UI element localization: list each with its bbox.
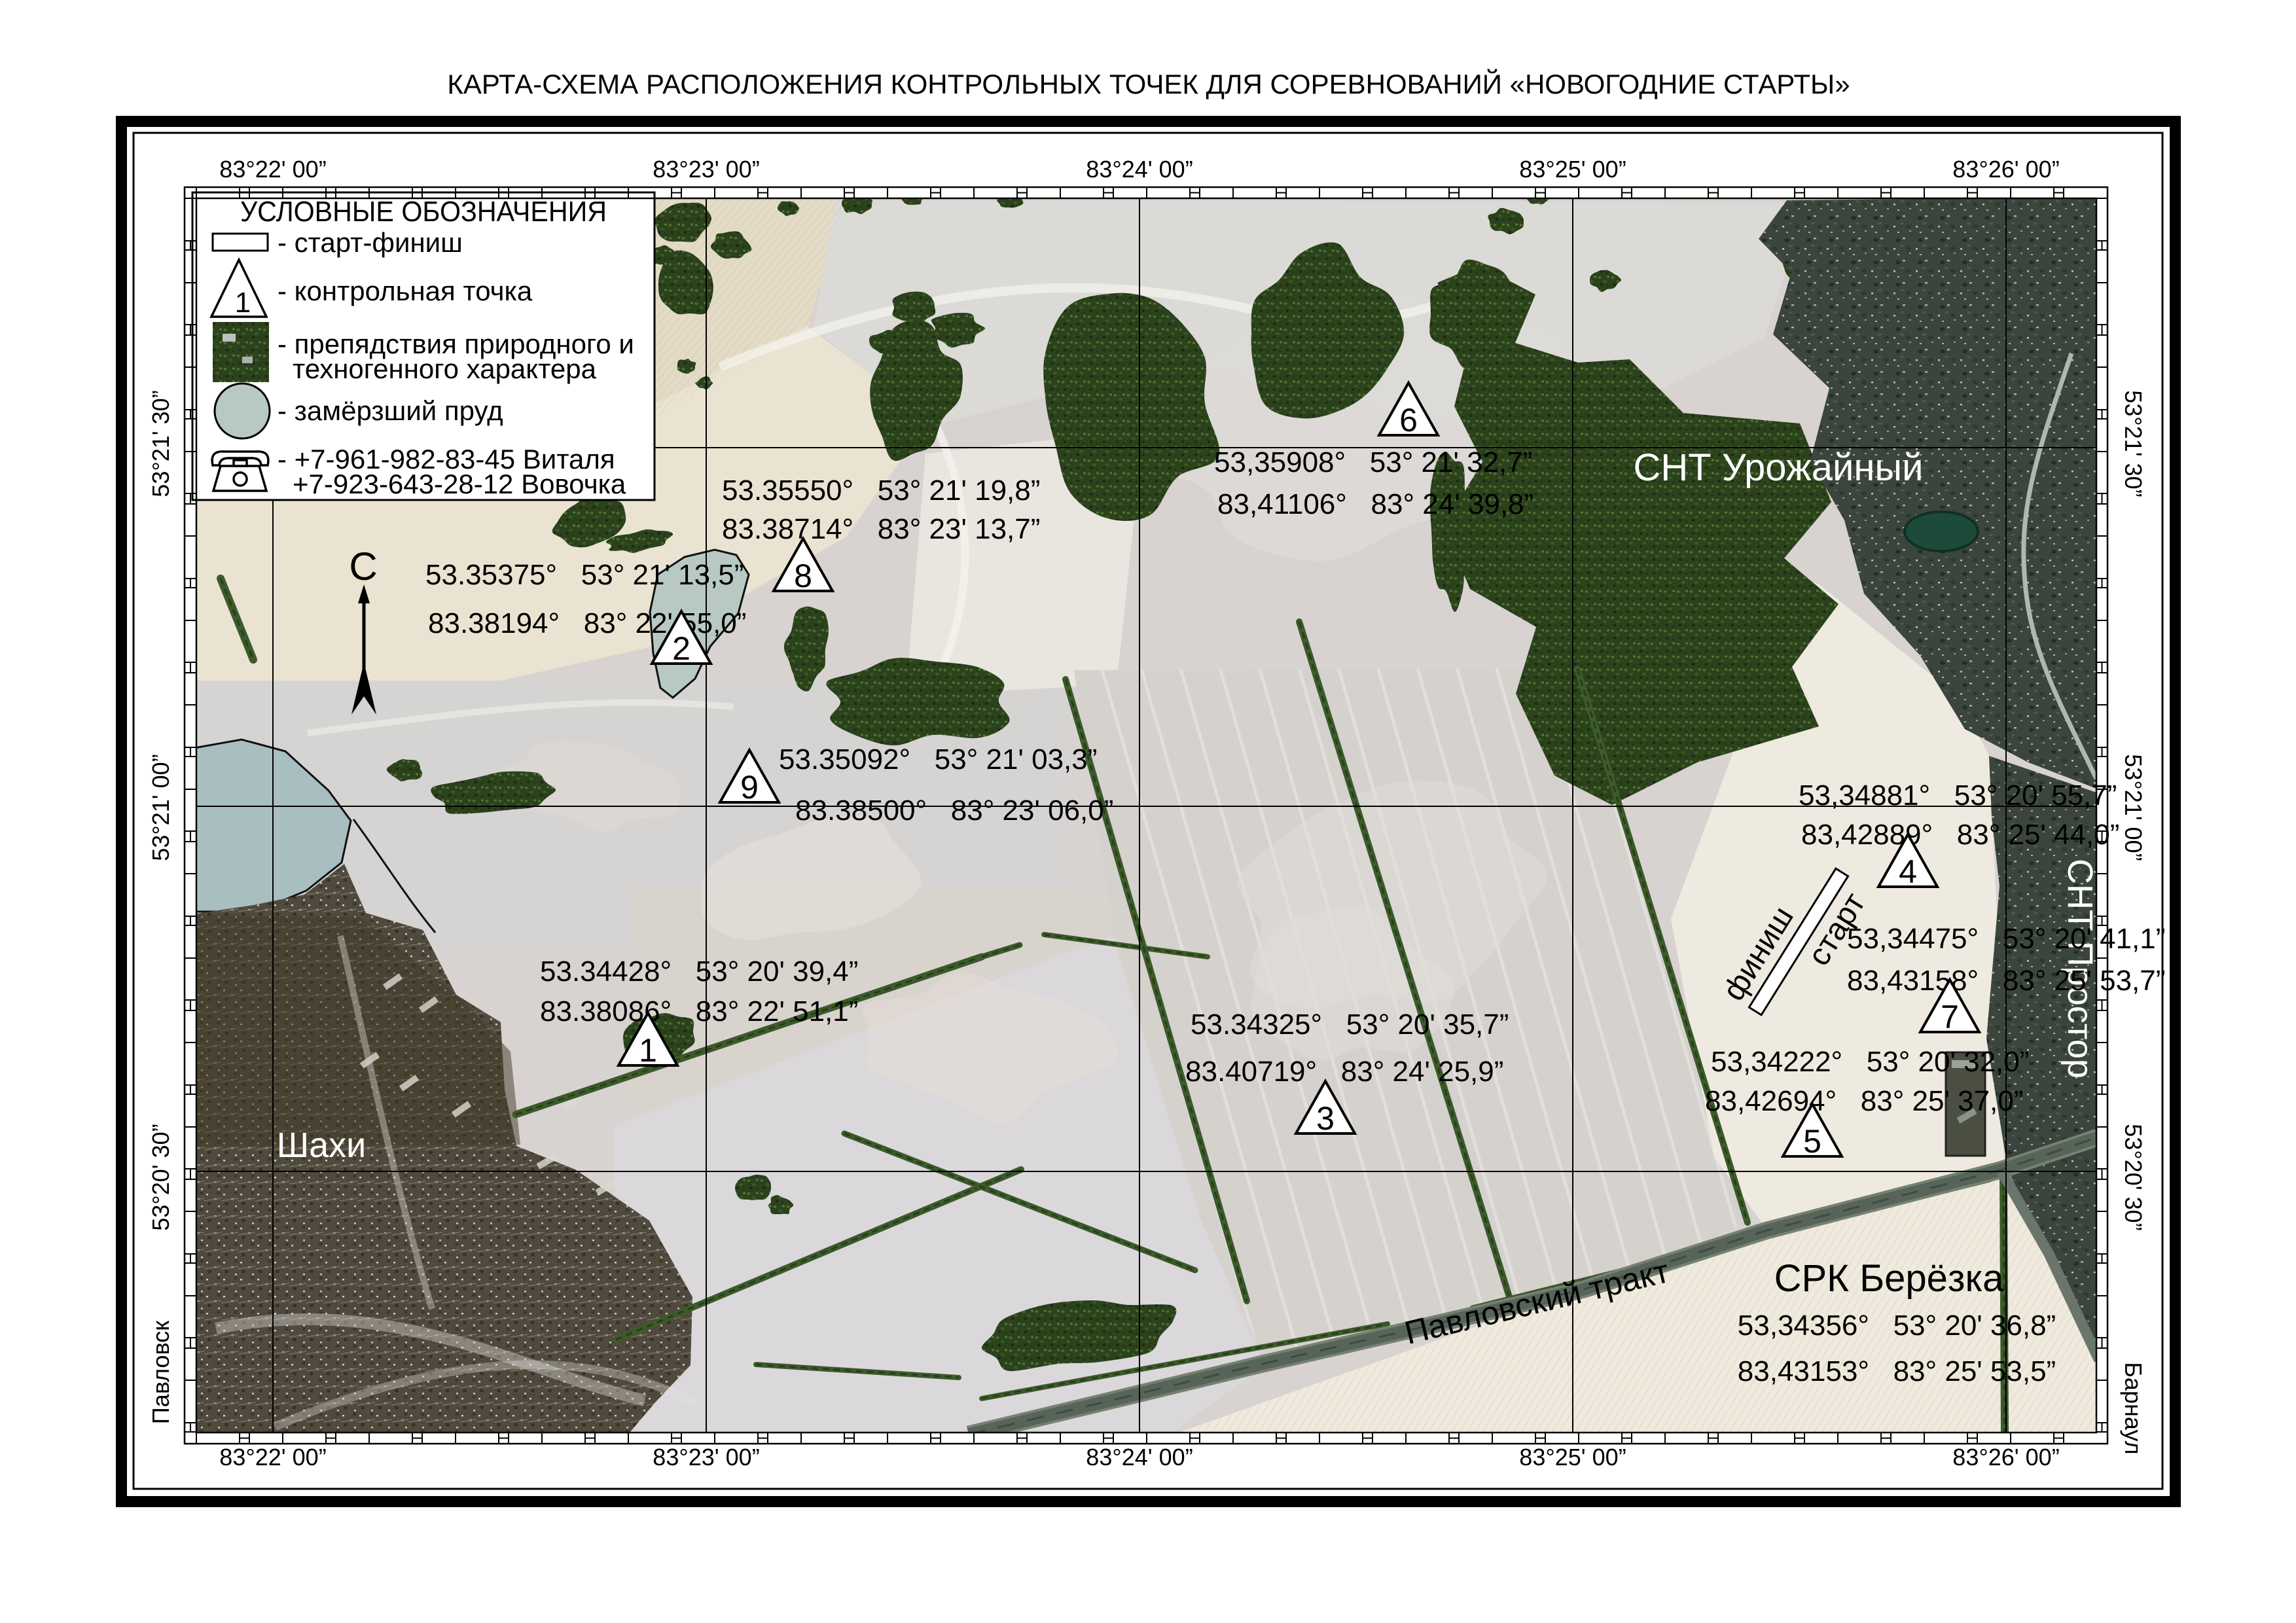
svg-text:4: 4 [1899,853,1917,890]
svg-text:СНТ Урожайный: СНТ Урожайный [1634,446,1924,489]
svg-text:- старт-финиш: - старт-финиш [278,227,463,258]
svg-text:6: 6 [1399,402,1418,438]
svg-text:83°25' 00”: 83°25' 00” [1519,1444,1626,1471]
svg-text:83,42694° 83° 25' 37,0”: 83,42694° 83° 25' 37,0” [1705,1085,2023,1117]
svg-text:83,43158° 83° 25' 53,7”: 83,43158° 83° 25' 53,7” [1847,965,2165,997]
svg-text:83.38714° 83° 23' 13,7”: 83.38714° 83° 23' 13,7” [722,513,1040,545]
svg-text:53°20' 30”: 53°20' 30” [147,1124,174,1230]
svg-text:53,34222° 53° 20' 32,0”: 53,34222° 53° 20' 32,0” [1711,1046,2029,1078]
svg-text:- замёрзший пруд: - замёрзший пруд [278,395,503,426]
svg-text:СРК Берёзка: СРК Берёзка [1774,1257,2005,1300]
svg-text:1: 1 [639,1032,657,1069]
svg-text:83.38086° 83° 22' 51,1”: 83.38086° 83° 22' 51,1” [540,995,858,1027]
svg-text:- контрольная точка: - контрольная точка [278,276,533,306]
svg-text:53°21' 30”: 53°21' 30” [147,390,174,497]
svg-text:53°21' 30”: 53°21' 30” [2120,390,2147,497]
svg-text:53°20' 30”: 53°20' 30” [2120,1124,2147,1230]
svg-text:83°24' 00”: 83°24' 00” [1086,1444,1193,1471]
svg-text:83°22' 00”: 83°22' 00” [219,1444,326,1471]
svg-text:9: 9 [740,769,759,806]
svg-text:53.35092° 53° 21' 03,3”: 53.35092° 53° 21' 03,3” [779,743,1097,776]
svg-text:53°21' 00”: 53°21' 00” [147,754,174,861]
svg-text:5: 5 [1803,1123,1821,1160]
svg-text:83.38500° 83° 23' 06,0”: 83.38500° 83° 23' 06,0” [795,794,1113,827]
svg-text:83,43153° 83° 25' 53,5”: 83,43153° 83° 25' 53,5” [1738,1355,2056,1387]
svg-text:53.34325° 53° 20' 35,7”: 53.34325° 53° 20' 35,7” [1191,1008,1509,1041]
svg-text:С: С [349,544,377,588]
svg-text:83.38194° 83° 22' 55,0”: 83.38194° 83° 22' 55,0” [428,607,746,639]
svg-text:83°23' 00”: 83°23' 00” [653,156,759,183]
svg-text:7: 7 [1941,999,1959,1035]
svg-text:83°24' 00”: 83°24' 00” [1086,156,1193,183]
svg-text:8: 8 [794,558,812,594]
svg-text:Павловск: Павловск [147,1321,174,1424]
svg-text:53.34428° 53° 20' 39,4”: 53.34428° 53° 20' 39,4” [540,955,858,988]
svg-text:83,41106° 83° 24' 39,8”: 83,41106° 83° 24' 39,8” [1217,488,1534,520]
svg-text:83°22' 00”: 83°22' 00” [219,156,326,183]
svg-text:83°23' 00”: 83°23' 00” [653,1444,759,1471]
svg-text:53,34881° 53° 20' 55,7”: 53,34881° 53° 20' 55,7” [1799,779,2117,811]
svg-text:83°26' 00”: 83°26' 00” [1952,1444,2059,1471]
svg-text:Шахи: Шахи [277,1126,367,1165]
svg-text:53,34356° 53° 20' 36,8”: 53,34356° 53° 20' 36,8” [1738,1310,2056,1342]
svg-text:53°21' 00”: 53°21' 00” [2120,754,2147,861]
svg-text:53,34475° 53° 20' 41,1”: 53,34475° 53° 20' 41,1” [1847,923,2165,955]
svg-text:КАРТА-СХЕМА РАСПОЛОЖЕНИЯ КОНТР: КАРТА-СХЕМА РАСПОЛОЖЕНИЯ КОНТРОЛЬНЫХ ТОЧ… [447,68,1850,99]
svg-text:Барнаул: Барнаул [2120,1362,2147,1454]
svg-text:3: 3 [1316,1100,1335,1137]
svg-text:83°26' 00”: 83°26' 00” [1952,156,2059,183]
svg-text:53.35550° 53° 21' 19,8”: 53.35550° 53° 21' 19,8” [722,474,1040,507]
svg-text:УСЛОВНЫЕ ОБОЗНАЧЕНИЯ: УСЛОВНЫЕ ОБОЗНАЧЕНИЯ [240,196,607,228]
svg-text:1: 1 [235,287,251,319]
svg-text:53,35908° 53° 21' 32,7”: 53,35908° 53° 21' 32,7” [1214,446,1532,478]
svg-text:53.35375° 53° 21' 13,5”: 53.35375° 53° 21' 13,5” [425,559,744,591]
svg-text:техногенного характера: техногенного характера [293,353,597,384]
svg-text:+7-923-643-28-12 Вовочка: +7-923-643-28-12 Вовочка [293,469,626,499]
svg-text:2: 2 [672,630,691,667]
svg-text:83,42889° 83° 25' 44,0”: 83,42889° 83° 25' 44,0” [1801,819,2119,851]
svg-text:83.40719° 83° 24' 25,9”: 83.40719° 83° 24' 25,9” [1185,1056,1503,1088]
svg-text:83°25' 00”: 83°25' 00” [1519,156,1626,183]
